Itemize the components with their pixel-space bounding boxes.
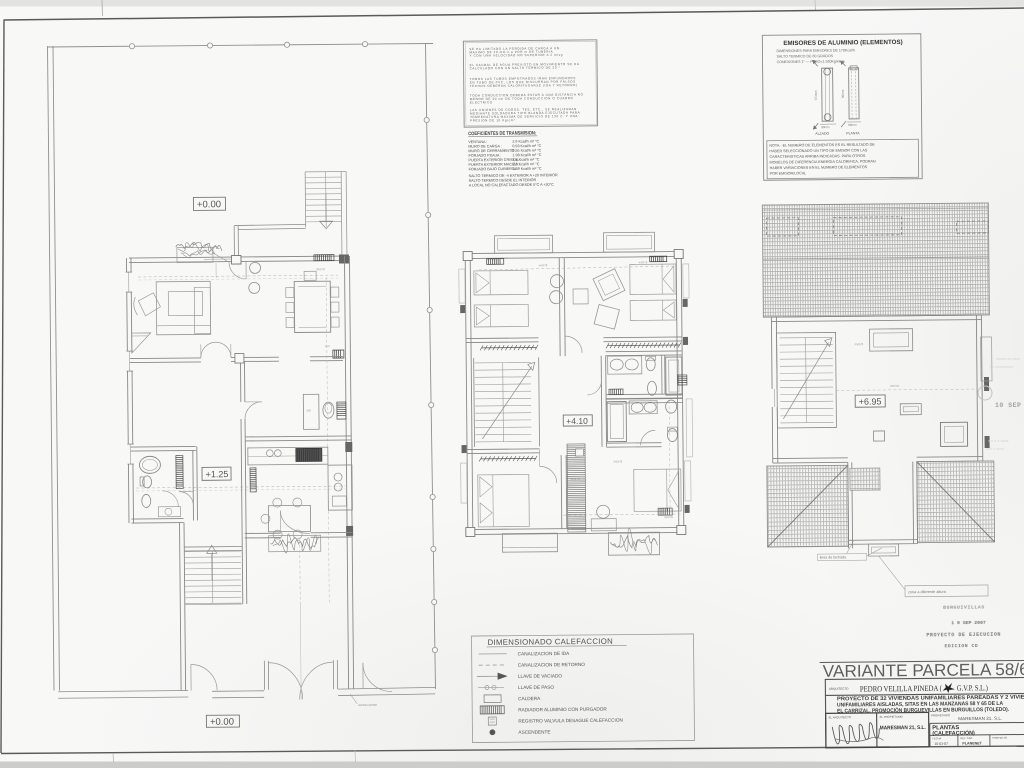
svg-text:EL ARQUITECTO: EL ARQUITECTO (829, 715, 852, 719)
svg-text:G.V.P. S.L.): G.V.P. S.L.) (957, 683, 988, 692)
svg-text:80mm: 80mm (848, 123, 857, 127)
svg-text:CARACTERISTICAS ARRIBA INDICAD: CARACTERISTICAS ARRIBA INDICADAS. PARA O… (769, 154, 865, 159)
svg-text:CANALIZACION DE IDA: CANALIZACION DE IDA (518, 651, 570, 657)
svg-text:ARQUITECTO: ARQUITECTO (829, 687, 849, 691)
svg-text:EMISORES DE ALUMINIO (ELEMENTO: EMISORES DE ALUMINIO (ELEMENTOS) (783, 39, 902, 47)
svg-text:NOTA.- EL NUMERO DE ELEMENTOS: NOTA.- EL NUMERO DE ELEMENTOS ES EL RESU… (769, 143, 875, 148)
svg-text:ALZADO: ALZADO (815, 132, 829, 136)
svg-text:CANALIZACION DE RETORNO: CANALIZACION DE RETORNO (518, 662, 586, 668)
svg-text:#50/78: #50/78 (664, 515, 673, 519)
svg-text:REF. CAD: REF. CAD (960, 736, 972, 740)
svg-text:ELECTRICO: ELECTRICO (470, 100, 493, 104)
svg-text:+1.25: +1.25 (205, 469, 228, 479)
svg-text:#50/78: #50/78 (639, 260, 648, 264)
svg-text:PROPIETARIO: PROPIETARIO (931, 713, 951, 717)
svg-text:CALDERA: CALDERA (518, 696, 541, 701)
svg-text:#50/78: #50/78 (539, 263, 548, 267)
svg-text:PEDRO VELILLA PINEDA (: PEDRO VELILLA PINEDA ( (860, 684, 942, 694)
svg-text:xxxxx xx xxxx: xxxxx xx xxxx (996, 356, 1020, 361)
svg-text:VENTANA :: VENTANA : (468, 140, 487, 144)
svg-text:MARESMAN 21, S.L.: MARESMAN 21, S.L. (880, 725, 927, 731)
svg-text:BURGUIVILLAS: BURGUIVILLAS (943, 604, 985, 610)
svg-text:PROYECTO DE EJECUCION: PROYECTO DE EJECUCION (926, 632, 1001, 639)
svg-text:TECHOS DEBERAN CALORIFUGARSE (: TECHOS DEBERAN CALORIFUGARSE (IDA Y RETO… (470, 83, 578, 88)
svg-text:DIMENSIONES PARA EMISORES DE 1: DIMENSIONES PARA EMISORES DE 170Kcal/h (776, 48, 854, 53)
svg-text:+0.00: +0.00 (197, 199, 221, 210)
svg-text:Y CON UNA VELOCIDAD NO SUPERIO: Y CON UNA VELOCIDAD NO SUPERIOR A 2 m/sg (469, 53, 563, 58)
svg-text:MARESMAN 21. S.L.: MARESMAN 21. S.L. (958, 716, 1002, 721)
svg-text:LLAVE DE VACIADO: LLAVE DE VACIADO (518, 673, 563, 678)
svg-text:xxx x xxxx: xxx x xxxx (986, 446, 1004, 451)
svg-text:PLANENET: PLANENET (962, 741, 982, 745)
svg-text:#50/78: #50/78 (316, 267, 325, 271)
svg-text:d50: d50 (306, 408, 311, 412)
svg-text:PROYECTO: PROYECTO (992, 736, 1007, 740)
svg-text:80mm: 80mm (821, 125, 830, 129)
svg-text:xx xxxxxxxxx: xx xxxxxxxxx (990, 364, 1013, 369)
svg-text:#50/78: #50/78 (614, 460, 623, 464)
svg-text:PLANTA: PLANTA (846, 131, 860, 135)
svg-text:SALTO TERMICO DE -4 EXTERIOR A: SALTO TERMICO DE -4 EXTERIOR A +20 INTER… (469, 173, 558, 178)
svg-text:EDICION CD: EDICION CD (944, 643, 978, 649)
svg-text:LLAVE DE PASO: LLAVE DE PASO (518, 685, 554, 690)
svg-text:REGISTRO VALVULA DESAGUE CALEF: REGISTRO VALVULA DESAGUE CALEFACCION (518, 718, 623, 724)
svg-text:#50/78: #50/78 (890, 384, 899, 388)
svg-text:673mm: 673mm (814, 90, 818, 101)
svg-text:+6.95: +6.95 (859, 396, 882, 406)
svg-text:POR EMISOR/LOCAL: POR EMISOR/LOCAL (770, 171, 807, 175)
svg-text:linea de fachada: linea de fachada (820, 555, 846, 559)
svg-text:#50: #50 (325, 344, 330, 348)
svg-text:SALTO TERMICO DE 60 GRADOS: SALTO TERMICO DE 60 GRADOS (776, 54, 833, 59)
svg-text:CONEXIONES 1" — PESO=1.920Kg: CONEXIONES 1" — PESO=1.920Kg/elem (777, 59, 845, 64)
svg-text:HABER SELECCIONADO UN TIPO DE: HABER SELECCIONADO UN TIPO DE EMISOR CON… (769, 148, 867, 153)
svg-text:acceso porton: acceso porton (358, 703, 377, 707)
svg-text:HABER VARIACIONES EN EL NUMERO: HABER VARIACIONES EN EL NUMERO DE ELEMEN… (770, 165, 868, 170)
svg-text:x x x x xxxx: x x x x xxxx (988, 438, 1008, 443)
svg-text:1 0 SEP 2007: 1 0 SEP 2007 (951, 620, 986, 626)
svg-text:+0.00: +0.00 (210, 717, 234, 728)
svg-text:FORJADO BAJO CUBIERTA :: FORJADO BAJO CUBIERTA : (469, 167, 518, 171)
svg-text:RADIADOR ALUMINIO CON PURGADOR: RADIADOR ALUMINIO CON PURGADOR (518, 707, 607, 713)
svg-text:10 SEP 20: 10 SEP 20 (995, 402, 1024, 409)
svg-text:CALCULADO CON UN SALTO TERMICO: CALCULADO CON UN SALTO TERMICO DE 20 ° (470, 66, 561, 71)
svg-text:1.59 Kcal/h m² °C: 1.59 Kcal/h m² °C (513, 167, 542, 171)
svg-text:zona a diferente altura: zona a diferente altura (908, 590, 947, 594)
svg-text:DIMENSIONADO CALEFACCION: DIMENSIONADO CALEFACCION (488, 637, 614, 647)
svg-text:EL PROPIETARIO: EL PROPIETARIO (880, 715, 904, 719)
svg-text:#50/78: #50/78 (571, 477, 580, 481)
svg-text:80mm: 80mm (841, 89, 845, 98)
svg-text:MODELOS DE DIFERENCIA ENERGIA: MODELOS DE DIFERENCIA ENERGIA CALORIFICA… (770, 159, 877, 164)
svg-text:FECHA: FECHA (932, 736, 941, 740)
svg-text:A LOCAL NO CALEFACTADO DESDE 5: A LOCAL NO CALEFACTADO DESDE 5°C A +20°C (469, 183, 554, 188)
svg-text:10-01-07: 10-01-07 (934, 742, 948, 746)
svg-text:#50/78: #50/78 (855, 342, 864, 346)
svg-text:PRESION DE 10 Kg/cm²: PRESION DE 10 Kg/cm² (470, 118, 515, 122)
svg-text:ASCENDENTE: ASCENDENTE (518, 730, 550, 735)
svg-text:+4.10: +4.10 (566, 416, 588, 426)
